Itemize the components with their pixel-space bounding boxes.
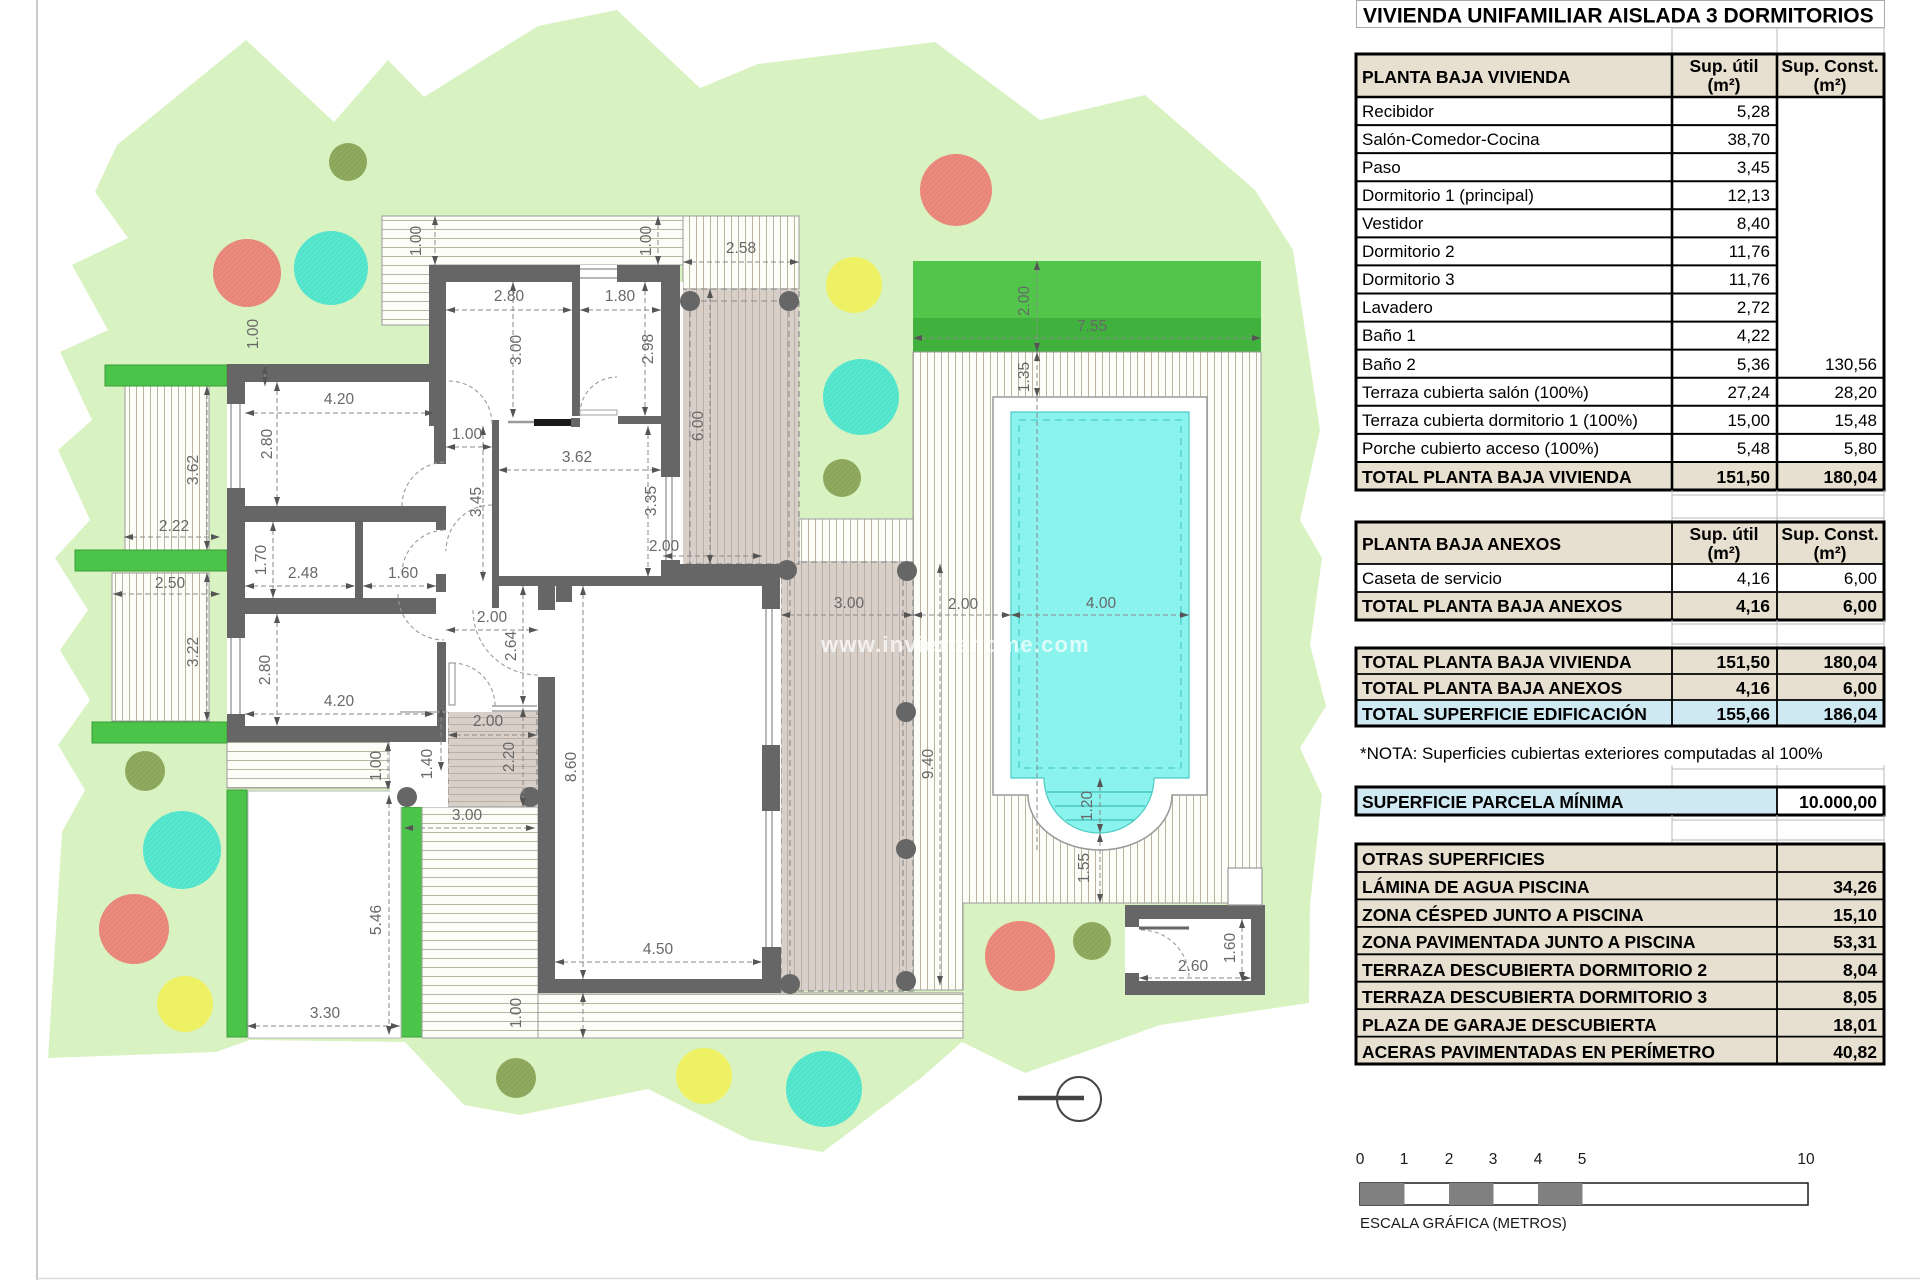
svg-text:3.62: 3.62 — [185, 455, 202, 485]
svg-text:Recibidor: Recibidor — [1362, 102, 1434, 121]
svg-text:2.00: 2.00 — [477, 609, 508, 626]
svg-text:1.70: 1.70 — [253, 545, 270, 576]
svg-text:4,22: 4,22 — [1737, 326, 1770, 345]
svg-text:(m²): (m²) — [1707, 543, 1740, 563]
svg-text:6,00: 6,00 — [1843, 596, 1877, 616]
svg-text:4.20: 4.20 — [324, 693, 355, 710]
svg-text:4,16: 4,16 — [1736, 596, 1770, 616]
svg-text:Porche cubierto acceso (100%): Porche cubierto acceso (100%) — [1362, 439, 1599, 458]
svg-text:Sup. Const.: Sup. Const. — [1781, 56, 1878, 76]
svg-text:SUPERFICIE PARCELA MÍNIMA: SUPERFICIE PARCELA MÍNIMA — [1362, 791, 1624, 812]
svg-text:1.20: 1.20 — [1079, 791, 1096, 822]
svg-text:151,50: 151,50 — [1716, 652, 1770, 672]
svg-text:6,00: 6,00 — [1844, 569, 1877, 588]
svg-text:8,05: 8,05 — [1843, 987, 1877, 1007]
svg-text:3.22: 3.22 — [185, 637, 202, 667]
svg-text:130,56: 130,56 — [1825, 355, 1877, 374]
svg-text:Terraza cubierta dormitorio 1: Terraza cubierta dormitorio 1 (100%) — [1362, 411, 1638, 430]
svg-text:27,24: 27,24 — [1727, 383, 1770, 402]
svg-text:1.35: 1.35 — [1016, 362, 1033, 392]
svg-text:(m²): (m²) — [1813, 543, 1846, 563]
svg-text:2.00: 2.00 — [1016, 286, 1033, 317]
svg-text:3.00: 3.00 — [452, 807, 483, 824]
svg-text:ZONA PAVIMENTADA JUNTO A PISCI: ZONA PAVIMENTADA JUNTO A PISCINA — [1362, 932, 1696, 952]
svg-text:*NOTA: Superficies cubiertas e: *NOTA: Superficies cubiertas exteriores … — [1360, 744, 1823, 763]
svg-text:Sup. útil: Sup. útil — [1689, 56, 1758, 76]
svg-text:8,40: 8,40 — [1737, 214, 1770, 233]
svg-text:1.00: 1.00 — [508, 998, 525, 1029]
svg-text:Dormitorio 2: Dormitorio 2 — [1362, 242, 1455, 261]
svg-text:TERRAZA DESCUBIERTA DORMITORIO: TERRAZA DESCUBIERTA DORMITORIO 2 — [1362, 960, 1707, 980]
svg-text:Sup. Const.: Sup. Const. — [1781, 524, 1878, 544]
svg-text:0: 0 — [1356, 1151, 1365, 1168]
svg-text:2.58: 2.58 — [726, 240, 756, 257]
svg-text:3.62: 3.62 — [562, 449, 592, 466]
svg-text:7.55: 7.55 — [1077, 318, 1107, 335]
svg-text:2.22: 2.22 — [159, 518, 189, 535]
svg-text:10.000,00: 10.000,00 — [1799, 792, 1877, 812]
svg-text:4.50: 4.50 — [643, 941, 674, 958]
svg-text:5,48: 5,48 — [1737, 439, 1770, 458]
svg-text:34,26: 34,26 — [1833, 877, 1877, 897]
svg-text:180,04: 180,04 — [1823, 652, 1877, 672]
svg-text:(m²): (m²) — [1707, 75, 1740, 95]
svg-text:11,76: 11,76 — [1729, 242, 1770, 261]
svg-text:Dormitorio 1 (principal): Dormitorio 1 (principal) — [1362, 186, 1534, 205]
svg-text:9.40: 9.40 — [920, 749, 937, 780]
svg-text:ESCALA GRÁFICA (METROS): ESCALA GRÁFICA (METROS) — [1360, 1215, 1567, 1232]
svg-text:1.00: 1.00 — [245, 319, 262, 350]
svg-text:2.80: 2.80 — [494, 288, 525, 305]
svg-text:4,16: 4,16 — [1737, 569, 1770, 588]
svg-text:6.00: 6.00 — [690, 411, 707, 442]
svg-text:4.00: 4.00 — [1086, 595, 1117, 612]
svg-text:180,04: 180,04 — [1823, 467, 1877, 487]
svg-text:1.00: 1.00 — [638, 226, 655, 257]
svg-text:OTRAS SUPERFICIES: OTRAS SUPERFICIES — [1362, 849, 1545, 869]
svg-text:2.00: 2.00 — [948, 596, 979, 613]
svg-text:3: 3 — [1489, 1151, 1498, 1168]
svg-text:TOTAL PLANTA BAJA VIVIENDA: TOTAL PLANTA BAJA VIVIENDA — [1362, 467, 1632, 487]
svg-text:3,45: 3,45 — [1737, 158, 1770, 177]
svg-text:Baño 1: Baño 1 — [1362, 326, 1416, 345]
svg-text:2.98: 2.98 — [640, 334, 657, 364]
svg-text:1.60: 1.60 — [1222, 933, 1239, 964]
svg-text:Caseta de servicio: Caseta de servicio — [1362, 569, 1502, 588]
svg-text:2.80: 2.80 — [257, 655, 274, 686]
svg-text:5.46: 5.46 — [368, 905, 385, 935]
svg-text:1.00: 1.00 — [408, 226, 425, 257]
svg-text:11,76: 11,76 — [1729, 270, 1770, 289]
svg-text:Lavadero: Lavadero — [1362, 298, 1433, 317]
svg-text:1: 1 — [1400, 1151, 1409, 1168]
svg-text:1.00: 1.00 — [368, 751, 385, 782]
svg-text:2.64: 2.64 — [503, 631, 520, 662]
svg-text:PLAZA DE GARAJE DESCUBIERTA: PLAZA DE GARAJE DESCUBIERTA — [1362, 1015, 1657, 1035]
svg-text:TOTAL PLANTA BAJA ANEXOS: TOTAL PLANTA BAJA ANEXOS — [1362, 678, 1622, 698]
svg-text:Paso: Paso — [1362, 158, 1401, 177]
svg-text:53,31: 53,31 — [1833, 932, 1877, 952]
svg-text:38,70: 38,70 — [1727, 130, 1770, 149]
svg-text:Vestidor: Vestidor — [1362, 214, 1424, 233]
svg-text:5,36: 5,36 — [1737, 355, 1770, 374]
svg-text:2.60: 2.60 — [1178, 958, 1209, 975]
svg-text:4.20: 4.20 — [324, 391, 355, 408]
svg-text:PLANTA BAJA VIVIENDA: PLANTA BAJA VIVIENDA — [1362, 67, 1571, 87]
svg-text:2,72: 2,72 — [1737, 298, 1770, 317]
svg-text:TOTAL SUPERFICIE EDIFICACIÓN: TOTAL SUPERFICIE EDIFICACIÓN — [1362, 703, 1647, 724]
svg-text:ACERAS PAVIMENTADAS EN PERÍMET: ACERAS PAVIMENTADAS EN PERÍMETRO — [1362, 1041, 1715, 1062]
svg-text:www.inviertahome.com: www.inviertahome.com — [820, 632, 1090, 657]
svg-text:10: 10 — [1797, 1151, 1815, 1168]
svg-text:1.80: 1.80 — [605, 288, 636, 305]
svg-text:2.00: 2.00 — [649, 538, 680, 555]
svg-text:2.80: 2.80 — [259, 429, 276, 460]
svg-text:2.00: 2.00 — [473, 713, 504, 730]
svg-text:8,04: 8,04 — [1843, 960, 1877, 980]
svg-text:15,48: 15,48 — [1834, 411, 1877, 430]
svg-text:2.48: 2.48 — [288, 565, 318, 582]
svg-text:18,01: 18,01 — [1833, 1015, 1877, 1035]
svg-text:2.20: 2.20 — [501, 742, 518, 773]
svg-text:5,28: 5,28 — [1737, 102, 1770, 121]
svg-text:4: 4 — [1534, 1151, 1543, 1168]
svg-text:3.00: 3.00 — [508, 335, 525, 366]
svg-text:2: 2 — [1445, 1151, 1454, 1168]
svg-text:(m²): (m²) — [1813, 75, 1846, 95]
svg-text:5: 5 — [1578, 1151, 1587, 1168]
svg-text:PLANTA BAJA ANEXOS: PLANTA BAJA ANEXOS — [1362, 534, 1561, 554]
svg-text:4,16: 4,16 — [1736, 678, 1770, 698]
svg-text:2.50: 2.50 — [155, 575, 186, 592]
svg-text:LÁMINA DE AGUA PISCINA: LÁMINA DE AGUA PISCINA — [1362, 876, 1590, 897]
svg-text:5,80: 5,80 — [1844, 439, 1877, 458]
svg-text:ZONA CÉSPED JUNTO A PISCINA: ZONA CÉSPED JUNTO A PISCINA — [1362, 904, 1644, 925]
svg-text:3.00: 3.00 — [834, 595, 865, 612]
svg-text:1.40: 1.40 — [419, 749, 436, 780]
svg-text:1.60: 1.60 — [388, 565, 419, 582]
svg-text:TOTAL PLANTA BAJA VIVIENDA: TOTAL PLANTA BAJA VIVIENDA — [1362, 652, 1632, 672]
svg-text:40,82: 40,82 — [1833, 1042, 1877, 1062]
svg-text:3.45: 3.45 — [468, 487, 485, 517]
svg-text:1.00: 1.00 — [452, 426, 483, 443]
svg-text:3.35: 3.35 — [643, 486, 660, 516]
svg-text:Terraza cubierta salón (100%): Terraza cubierta salón (100%) — [1362, 383, 1589, 402]
svg-text:155,66: 155,66 — [1716, 704, 1770, 724]
svg-text:12,13: 12,13 — [1727, 186, 1770, 205]
svg-text:VIVIENDA UNIFAMILIAR AISLADA 3: VIVIENDA UNIFAMILIAR AISLADA 3 DORMITORI… — [1363, 5, 1874, 28]
svg-text:186,04: 186,04 — [1823, 704, 1877, 724]
svg-text:3.30: 3.30 — [310, 1005, 341, 1022]
svg-text:15,10: 15,10 — [1833, 905, 1877, 925]
svg-text:1.55: 1.55 — [1076, 853, 1093, 883]
svg-text:Sup. útil: Sup. útil — [1689, 524, 1758, 544]
svg-text:151,50: 151,50 — [1716, 467, 1770, 487]
svg-text:6,00: 6,00 — [1843, 678, 1877, 698]
svg-text:Salón-Comedor-Cocina: Salón-Comedor-Cocina — [1362, 130, 1540, 149]
svg-text:8.60: 8.60 — [563, 752, 580, 783]
svg-text:TOTAL PLANTA BAJA ANEXOS: TOTAL PLANTA BAJA ANEXOS — [1362, 596, 1622, 616]
svg-text:28,20: 28,20 — [1834, 383, 1877, 402]
svg-text:Baño 2: Baño 2 — [1362, 355, 1416, 374]
svg-text:Dormitorio 3: Dormitorio 3 — [1362, 270, 1455, 289]
svg-text:TERRAZA DESCUBIERTA DORMITORIO: TERRAZA DESCUBIERTA DORMITORIO 3 — [1362, 987, 1707, 1007]
svg-text:15,00: 15,00 — [1727, 411, 1770, 430]
